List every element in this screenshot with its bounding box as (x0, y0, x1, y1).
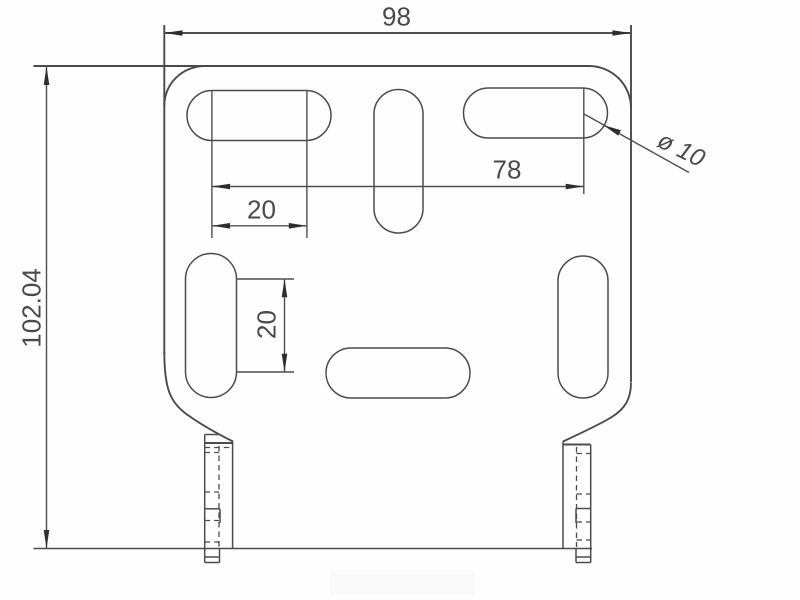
svg-text:20: 20 (247, 195, 276, 225)
svg-text:20: 20 (252, 310, 282, 339)
svg-text:78: 78 (493, 155, 522, 185)
svg-text:98: 98 (382, 2, 411, 32)
svg-text:102.04: 102.04 (17, 268, 47, 348)
